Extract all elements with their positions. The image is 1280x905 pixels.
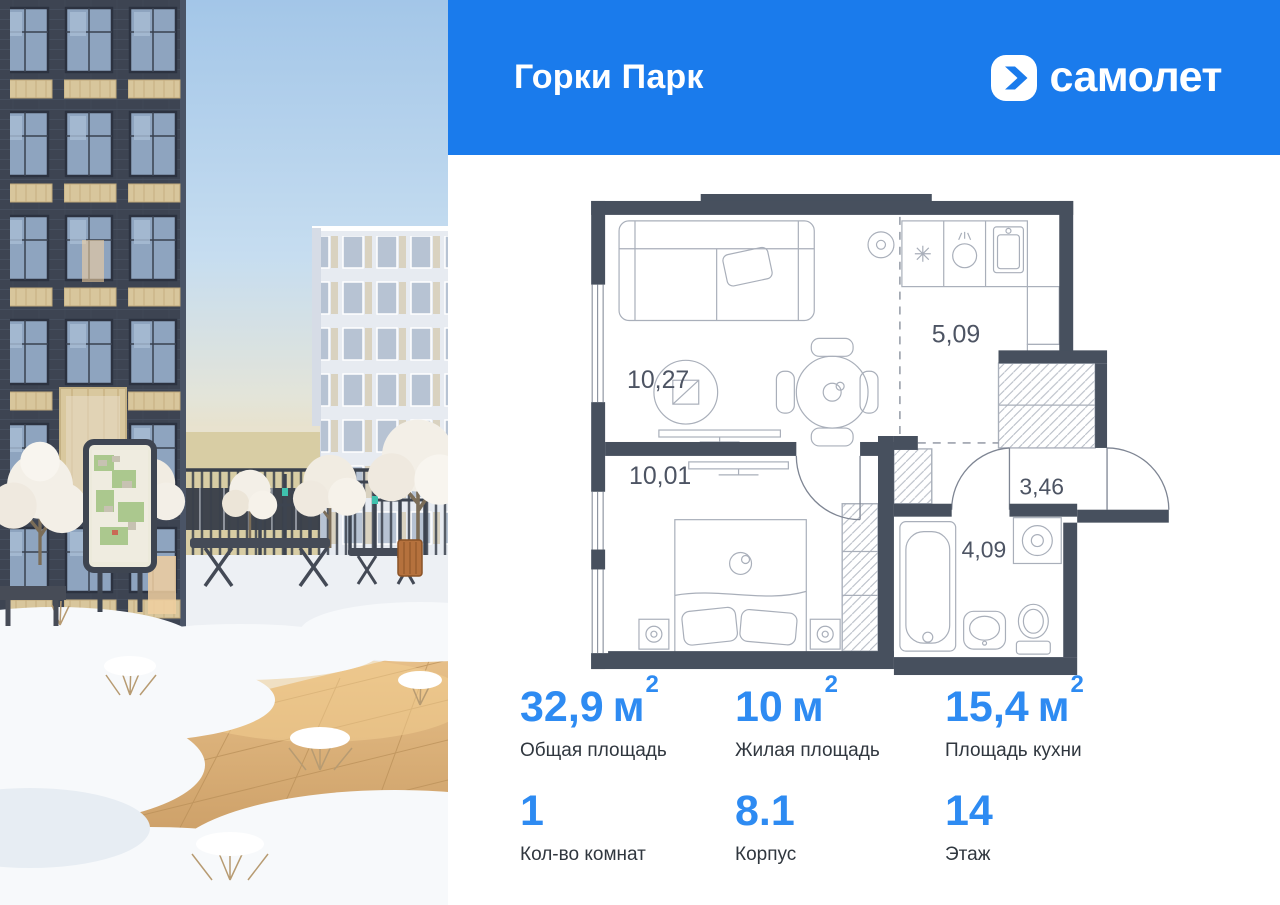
stat-value: 1 bbox=[520, 790, 725, 833]
stat-label: Площадь кухни bbox=[945, 740, 1150, 762]
stat-value: 10м2 bbox=[735, 686, 940, 729]
kitchen-area-label: 5,09 bbox=[932, 320, 980, 348]
stat-rooms-count: 1 Кол-во комнат bbox=[520, 790, 725, 866]
site-map bbox=[92, 450, 148, 562]
stat-label: Жилая площадь bbox=[735, 740, 940, 762]
stat-value: 14 bbox=[945, 790, 1150, 833]
bathroom-area-label: 4,09 bbox=[962, 537, 1007, 563]
stat-kitchen-area: 15,4м2 Площадь кухни bbox=[945, 686, 1150, 762]
stat-label: Этаж bbox=[945, 844, 1150, 866]
developer-logo: самолет bbox=[991, 53, 1222, 102]
hallway-area-label: 3,46 bbox=[1019, 474, 1064, 500]
stat-label: Общая площадь bbox=[520, 740, 725, 762]
bedroom-furniture bbox=[639, 462, 840, 653]
living-area-label: 10,27 bbox=[627, 366, 689, 394]
stat-living-area: 10м2 Жилая площадь bbox=[735, 686, 940, 762]
project-title: Горки Парк bbox=[514, 58, 704, 97]
stat-value: 15,4м2 bbox=[945, 686, 1150, 729]
stat-floor: 14 Этаж bbox=[945, 790, 1150, 866]
developer-name: самолет bbox=[1050, 53, 1222, 102]
stat-value: 32,9м2 bbox=[520, 686, 725, 729]
stat-value: 8.1 bbox=[735, 790, 940, 833]
courtyard-illustration bbox=[0, 0, 448, 905]
apartment-info-panel: Горки Парк самолет bbox=[448, 0, 1280, 905]
trash-bin bbox=[398, 540, 422, 576]
living-room-furniture bbox=[619, 221, 894, 446]
apartment-card: Горки Парк самолет bbox=[0, 0, 1280, 905]
stat-building: 8.1 Корпус bbox=[735, 790, 940, 866]
stat-label: Кол-во комнат bbox=[520, 844, 725, 866]
floor-plan: 10,27 5,09 10,01 3,46 4,09 bbox=[581, 193, 1173, 681]
stat-label: Корпус bbox=[735, 844, 940, 866]
floor-plan-drawing: 10,27 5,09 10,01 3,46 4,09 bbox=[581, 193, 1173, 681]
courtyard-photo bbox=[0, 0, 448, 905]
samolet-logo-icon bbox=[991, 55, 1037, 101]
stat-total-area: 32,9м2 Общая площадь bbox=[520, 686, 725, 762]
bedroom-area-label: 10,01 bbox=[629, 462, 691, 490]
card-header: Горки Парк самолет bbox=[448, 0, 1280, 155]
